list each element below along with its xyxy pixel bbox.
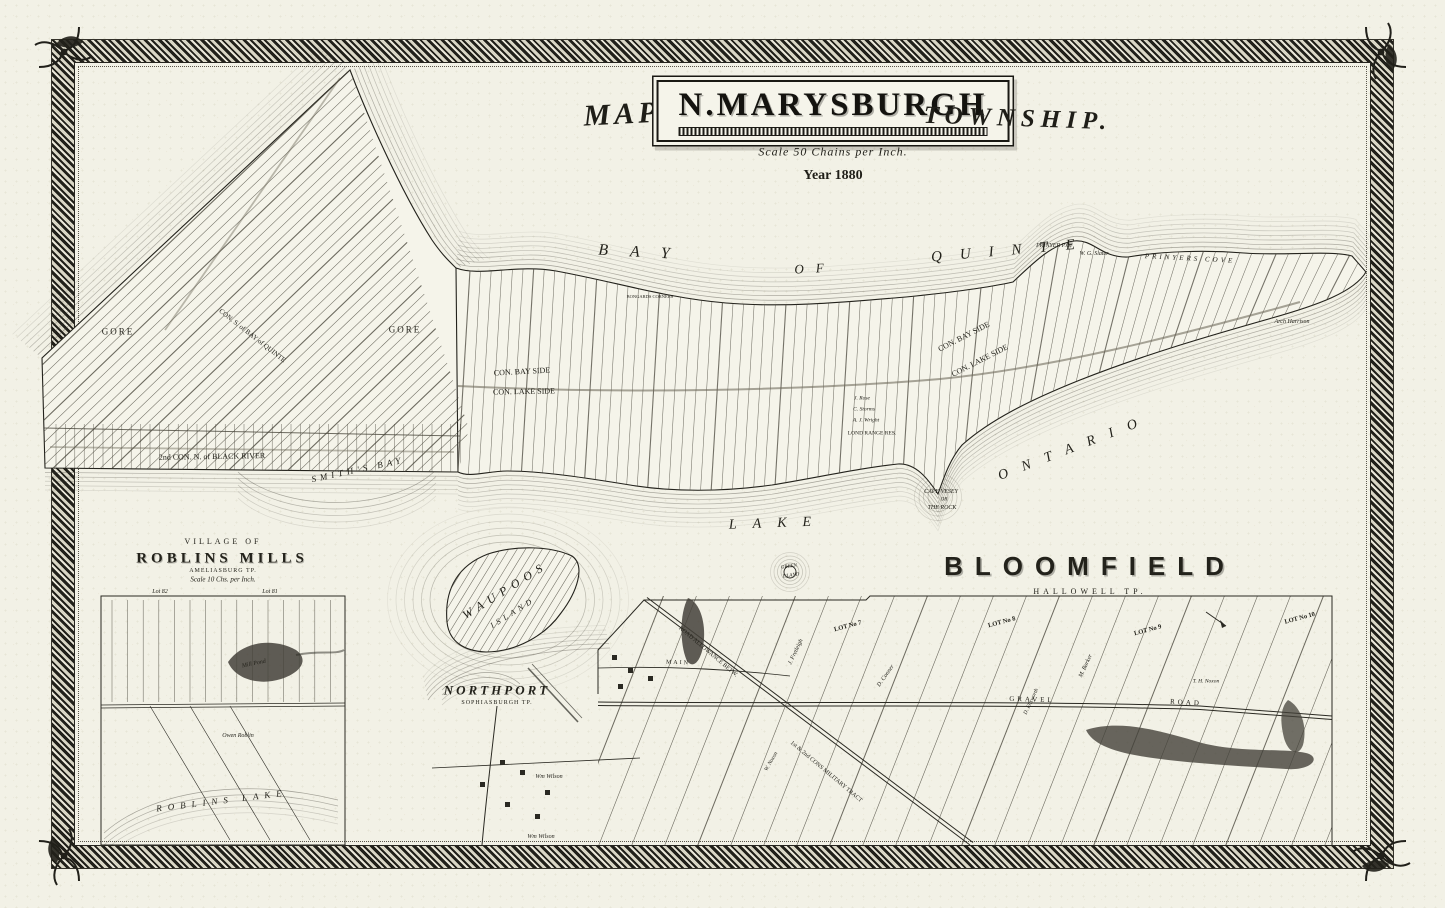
inset-bloomfield <box>598 596 1332 845</box>
main-peninsula-land <box>456 241 1366 494</box>
green-island-land <box>784 566 796 578</box>
inset-northport <box>432 664 640 845</box>
map-canvas <box>0 0 1445 908</box>
